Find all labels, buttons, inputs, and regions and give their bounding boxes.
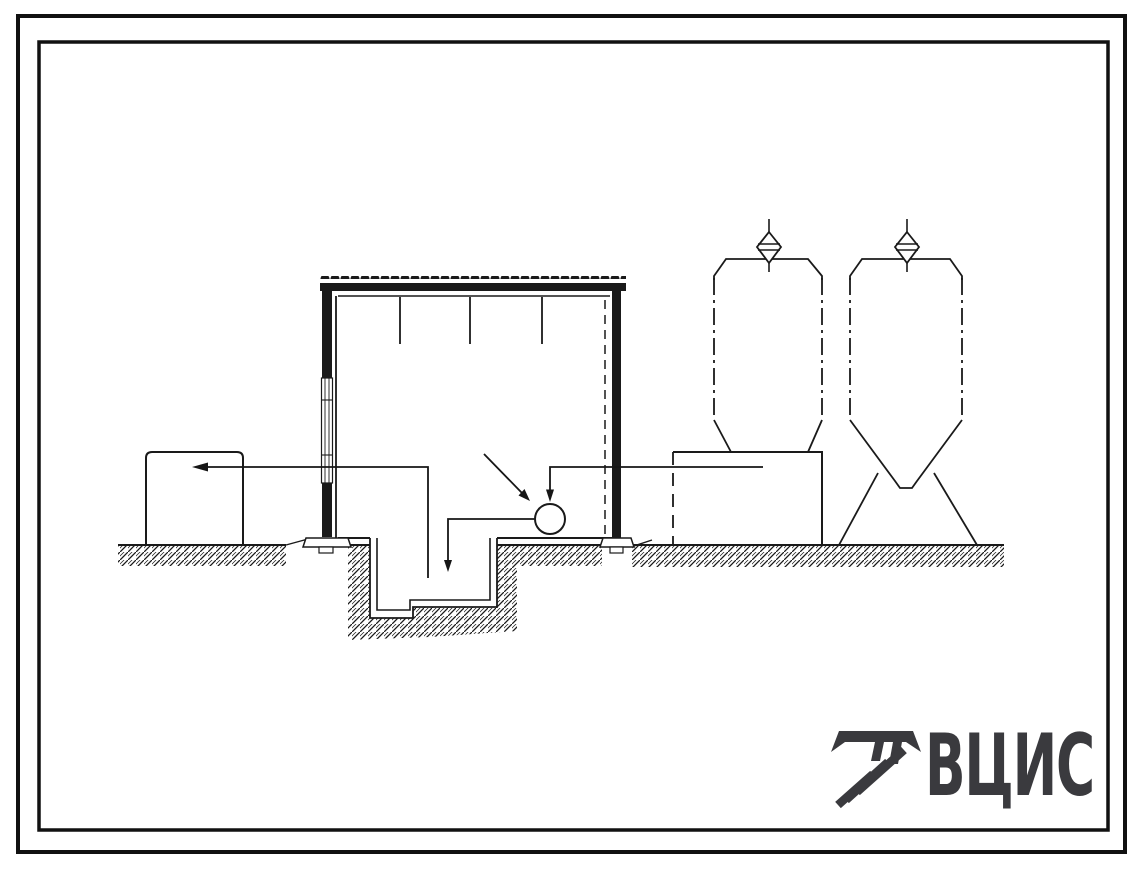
storage-tank-left [146, 452, 243, 544]
pump-circle [535, 504, 565, 534]
earth-band-right [632, 545, 1004, 567]
drawing-sheet: ВЦИС [0, 0, 1139, 869]
logo-text: ВЦИС [925, 716, 1094, 816]
silo-right-body-fill [850, 259, 962, 488]
vcis-logo: ВЦИС [831, 716, 1094, 816]
technical-drawing: ВЦИС [0, 0, 1139, 869]
interior-hanger-lines [400, 297, 542, 344]
silo-right [839, 219, 977, 545]
right-wall [605, 287, 621, 538]
pit-cavity [370, 538, 497, 618]
silo-left [714, 219, 822, 452]
earth-band-mid [517, 545, 602, 566]
building-cross-section [286, 276, 652, 553]
annotation-arrow-line [484, 454, 522, 493]
silo-left-body-fill [714, 259, 822, 452]
underground-pit [370, 538, 497, 618]
left-wall [322, 287, 337, 538]
ground-hatching [118, 545, 1004, 640]
tank-outline [146, 452, 243, 544]
roof-slab [320, 283, 626, 291]
arrow-down-icon [546, 490, 554, 503]
equipment-box-right [673, 452, 822, 545]
vcis-logo-stripes-icon [838, 750, 904, 805]
vcis-logo-mark-icon [831, 731, 921, 764]
earth-band-left [118, 545, 286, 566]
